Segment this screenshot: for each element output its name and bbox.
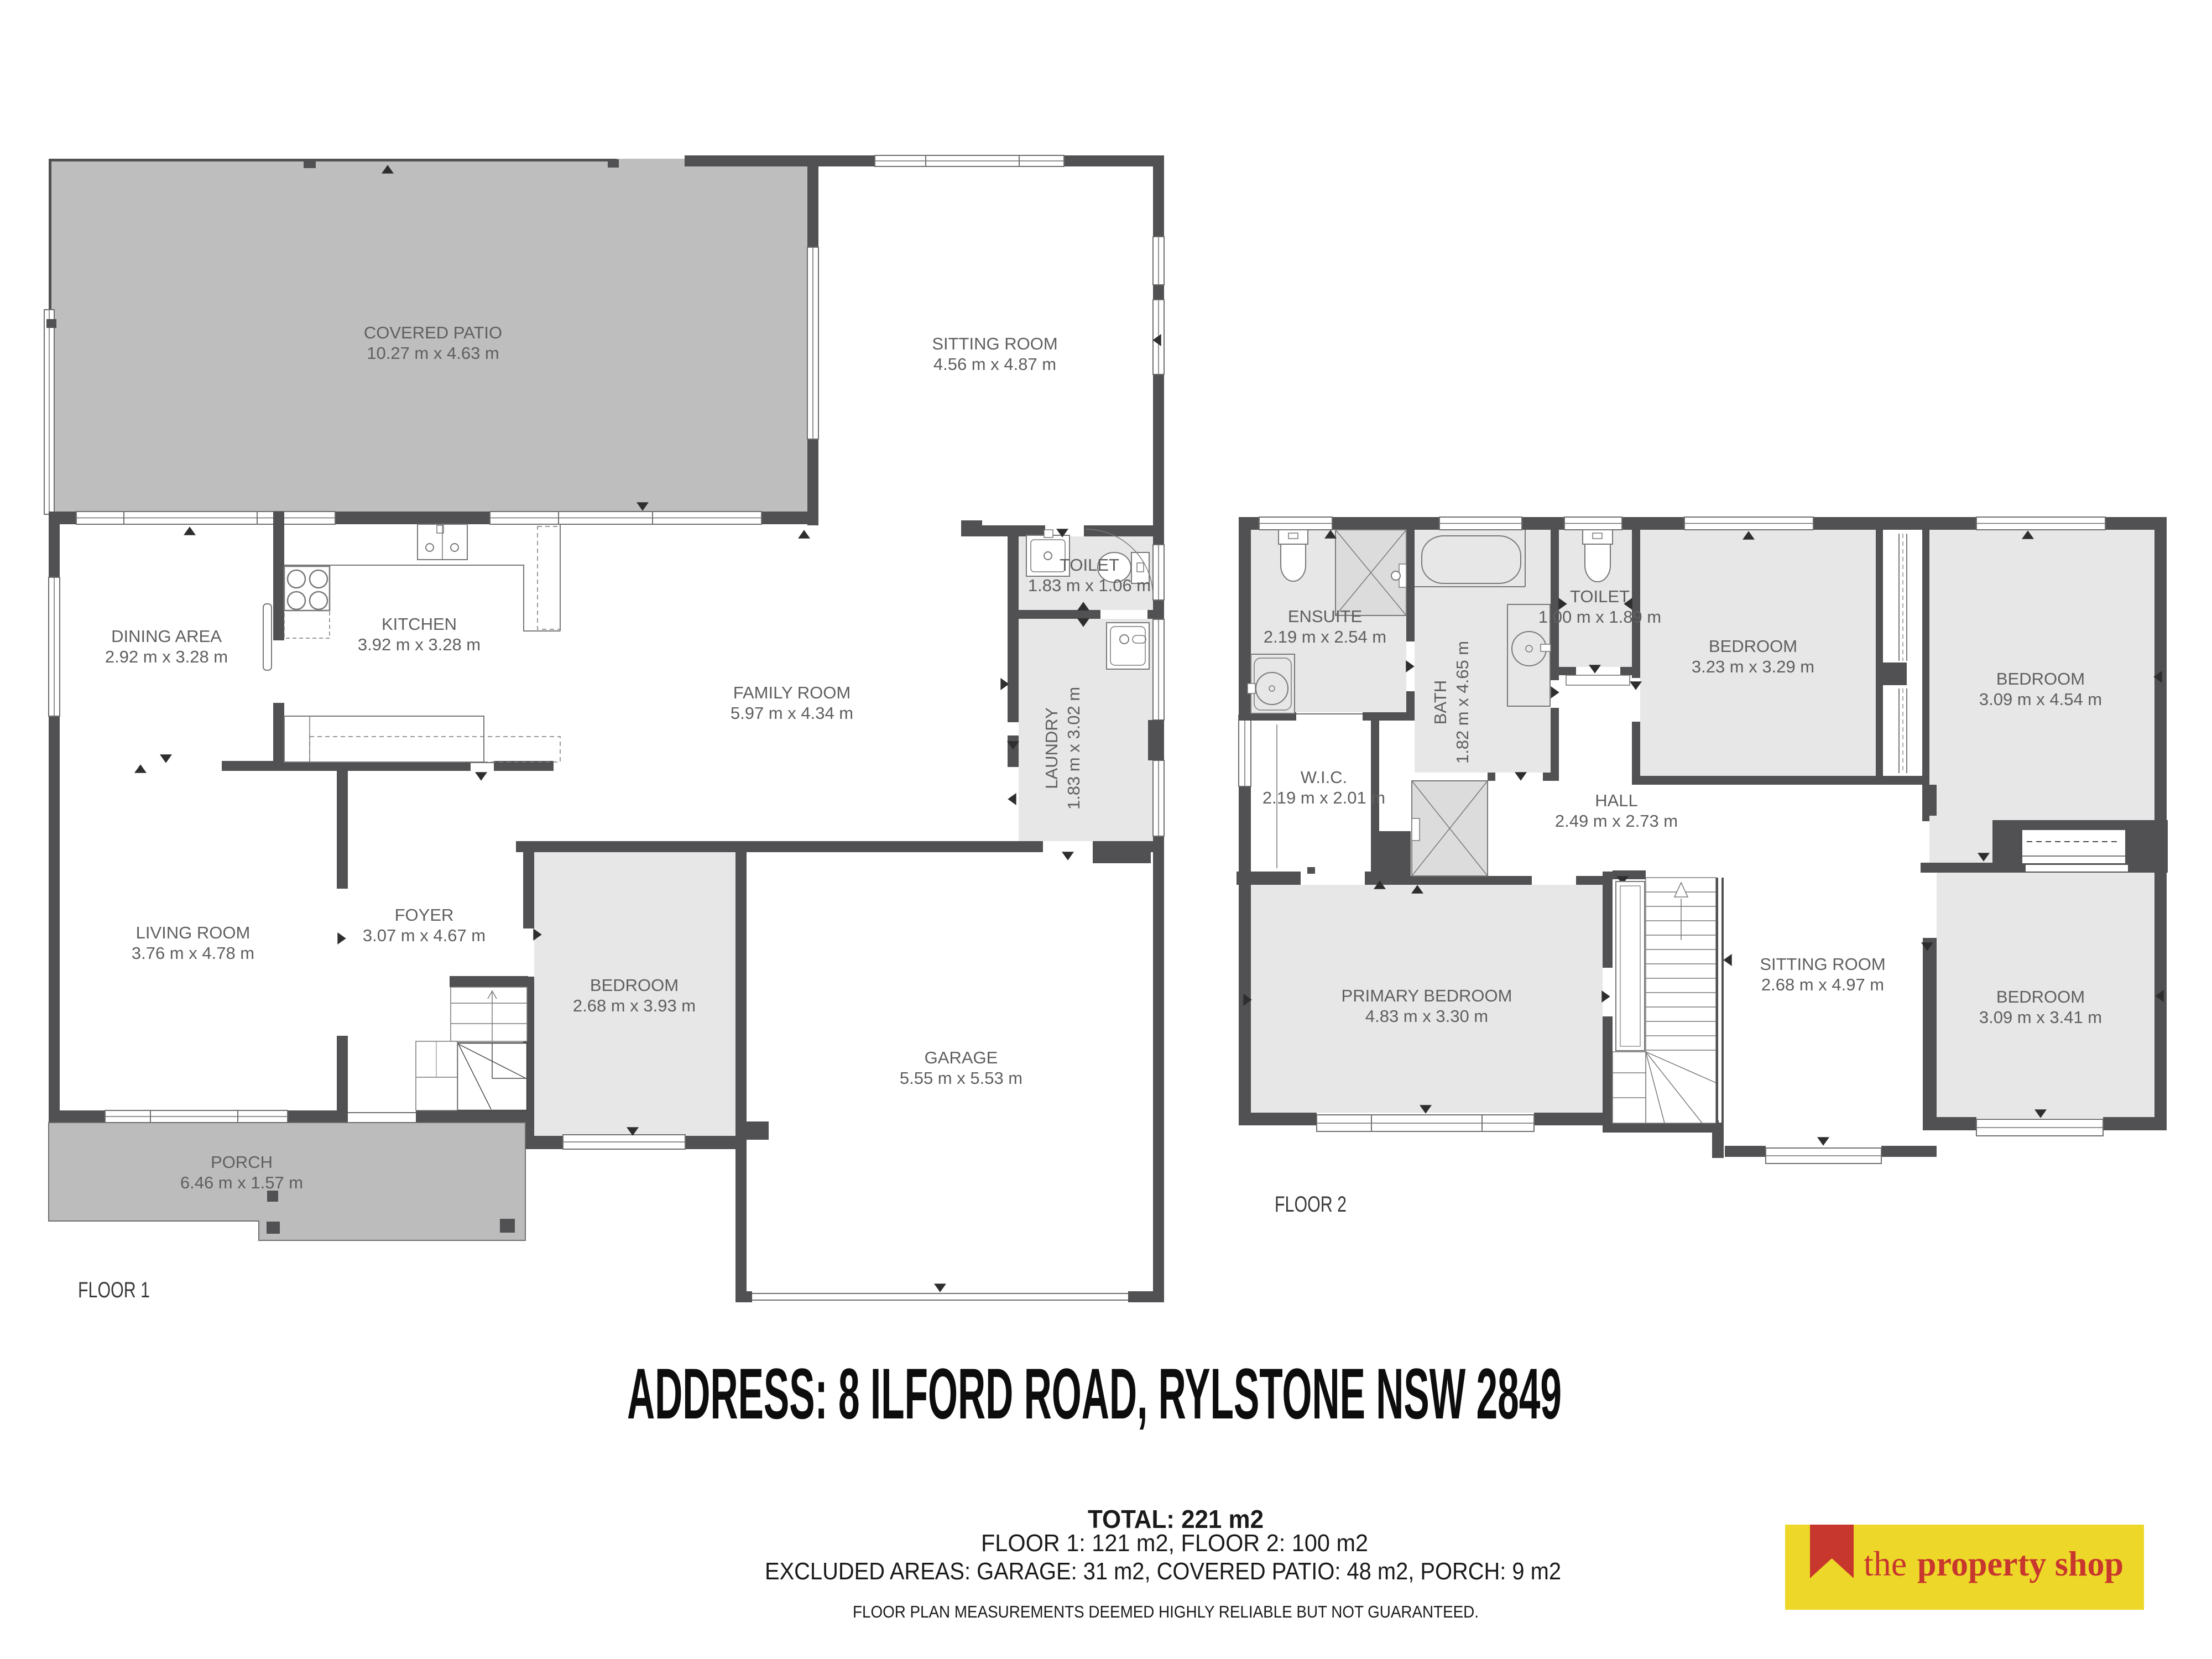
svg-text:BEDROOM: BEDROOM <box>1996 987 2085 1006</box>
svg-text:SITTING ROOM: SITTING ROOM <box>932 334 1057 353</box>
svg-text:2.92 m x 3.28 m: 2.92 m x 3.28 m <box>105 647 228 666</box>
svg-text:2.49 m x 2.73 m: 2.49 m x 2.73 m <box>1555 811 1678 831</box>
svg-text:PRIMARY BEDROOM: PRIMARY BEDROOM <box>1342 986 1512 1005</box>
svg-text:TOILET: TOILET <box>1060 555 1119 575</box>
svg-text:PORCH: PORCH <box>211 1152 273 1172</box>
svg-text:5.97 m x 4.34 m: 5.97 m x 4.34 m <box>731 703 853 723</box>
svg-text:FLOOR 2: FLOOR 2 <box>1275 1192 1347 1217</box>
svg-text:BATH: BATH <box>1431 680 1450 724</box>
svg-text:LAUNDRY: LAUNDRY <box>1042 707 1061 789</box>
svg-text:3.07 m x 4.67 m: 3.07 m x 4.67 m <box>363 926 486 945</box>
svg-text:FOYER: FOYER <box>395 905 454 925</box>
svg-text:3.23 m x 3.29 m: 3.23 m x 3.29 m <box>1692 657 1814 676</box>
svg-text:BEDROOM: BEDROOM <box>1709 637 1797 656</box>
svg-text:1.00 m x 1.89 m: 1.00 m x 1.89 m <box>1538 607 1661 627</box>
svg-text:1.82 m x 4.65 m: 1.82 m x 4.65 m <box>1453 641 1472 764</box>
svg-text:2.19 m x 2.54 m: 2.19 m x 2.54 m <box>1264 627 1386 646</box>
svg-text:EXCLUDED AREAS: GARAGE: 31 m2,: EXCLUDED AREAS: GARAGE: 31 m2, COVERED P… <box>765 1558 1561 1585</box>
svg-text:SITTING ROOM: SITTING ROOM <box>1760 954 1885 974</box>
svg-text:4.56 m x 4.87 m: 4.56 m x 4.87 m <box>933 354 1056 374</box>
svg-text:KITCHEN: KITCHEN <box>382 614 457 634</box>
svg-text:3.09 m x 4.54 m: 3.09 m x 4.54 m <box>1979 690 2102 709</box>
svg-text:property shop: property shop <box>1917 1544 2124 1583</box>
svg-text:the: the <box>1864 1544 1907 1583</box>
svg-text:2.68 m x 4.97 m: 2.68 m x 4.97 m <box>1761 975 1884 994</box>
svg-text:3.76 m x 4.78 m: 3.76 m x 4.78 m <box>132 943 254 963</box>
svg-text:1.83 m x 3.02 m: 1.83 m x 3.02 m <box>1064 687 1083 810</box>
svg-text:4.83 m x 3.30 m: 4.83 m x 3.30 m <box>1365 1006 1488 1026</box>
svg-text:W.I.C.: W.I.C. <box>1301 768 1347 787</box>
svg-text:3.09 m x 3.41 m: 3.09 m x 3.41 m <box>1979 1008 2102 1027</box>
svg-text:GARAGE: GARAGE <box>925 1048 998 1067</box>
svg-text:COVERED PATIO: COVERED PATIO <box>364 323 502 342</box>
svg-text:FLOOR 1: 121 m2, FLOOR 2: 100: FLOOR 1: 121 m2, FLOOR 2: 100 m2 <box>981 1530 1368 1557</box>
svg-text:2.19 m x 2.01 m: 2.19 m x 2.01 m <box>1262 788 1385 807</box>
svg-text:2.68 m x 3.93 m: 2.68 m x 3.93 m <box>573 996 696 1015</box>
svg-text:DINING AREA: DINING AREA <box>111 627 222 646</box>
svg-text:3.92 m x 3.28 m: 3.92 m x 3.28 m <box>358 635 481 654</box>
svg-text:TOILET: TOILET <box>1570 587 1630 606</box>
svg-text:5.55 m x 5.53 m: 5.55 m x 5.53 m <box>900 1068 1022 1088</box>
svg-text:BEDROOM: BEDROOM <box>590 975 679 995</box>
svg-text:FLOOR 1: FLOOR 1 <box>78 1278 150 1302</box>
svg-text:BEDROOM: BEDROOM <box>1996 669 2085 688</box>
svg-text:ENSUITE: ENSUITE <box>1288 607 1362 626</box>
svg-text:6.46 m x 1.57 m: 6.46 m x 1.57 m <box>180 1173 303 1192</box>
svg-text:FAMILY ROOM: FAMILY ROOM <box>733 683 851 702</box>
svg-text:1.83 m x 1.06 m: 1.83 m x 1.06 m <box>1028 576 1151 595</box>
svg-text:ADDRESS: 8 ILFORD ROAD, RYLSTO: ADDRESS: 8 ILFORD ROAD, RYLSTONE NSW 284… <box>627 1353 1562 1434</box>
svg-text:HALL: HALL <box>1595 791 1638 810</box>
svg-text:LIVING ROOM: LIVING ROOM <box>136 923 251 942</box>
svg-text:10.27 m x 4.63 m: 10.27 m x 4.63 m <box>367 343 499 363</box>
svg-text:FLOOR PLAN MEASUREMENTS DEEMED: FLOOR PLAN MEASUREMENTS DEEMED HIGHLY RE… <box>853 1602 1479 1621</box>
